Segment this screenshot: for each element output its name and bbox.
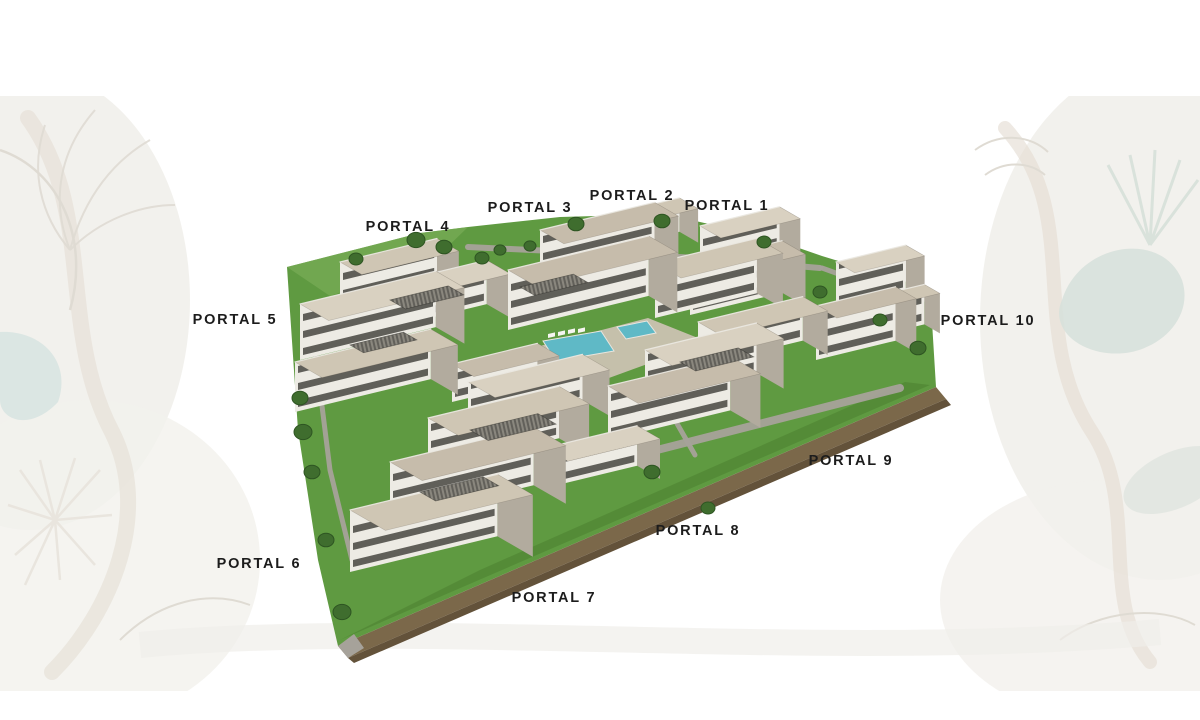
portal-label-6: PORTAL 6 — [217, 556, 302, 572]
portal-label-10: PORTAL 10 — [941, 313, 1036, 329]
site-plan-canvas: PORTAL 1PORTAL 2PORTAL 3PORTAL 4PORTAL 5… — [0, 0, 1200, 720]
portal-label-4: PORTAL 4 — [366, 219, 451, 235]
portal-label-1: PORTAL 1 — [685, 198, 770, 214]
portal-label-7: PORTAL 7 — [512, 590, 597, 606]
aerial-site-rendering — [0, 0, 1200, 720]
portal-label-2: PORTAL 2 — [590, 188, 675, 204]
portal-label-3: PORTAL 3 — [488, 200, 573, 216]
portal-label-8: PORTAL 8 — [656, 523, 741, 539]
portal-label-5: PORTAL 5 — [193, 312, 278, 328]
portal-label-9: PORTAL 9 — [809, 453, 894, 469]
